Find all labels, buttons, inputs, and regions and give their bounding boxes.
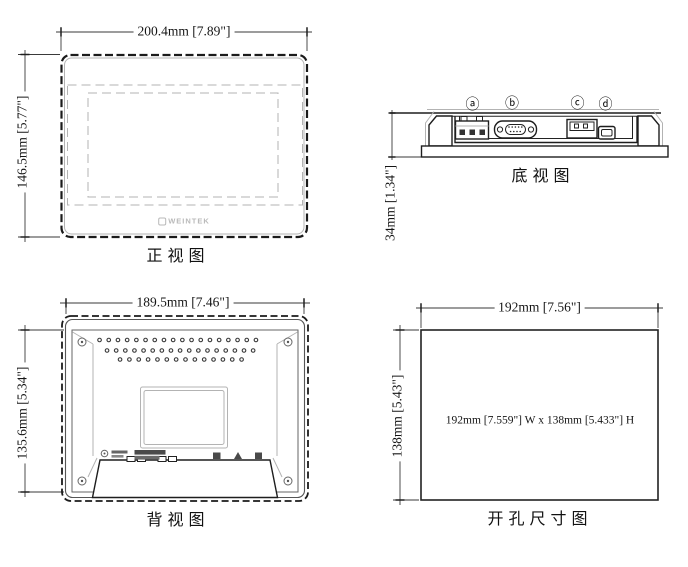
port-label-c: ⓒ — [571, 97, 585, 111]
bottom-left-mounting-ear — [429, 116, 452, 146]
micro-usb-port — [599, 127, 616, 140]
line-art — [0, 0, 688, 567]
port-label-b: ⓑ — [505, 97, 519, 111]
bottom-height-dim-lines — [388, 110, 421, 160]
rear-height-dimension-label: 135.6mm [5.34"] — [16, 363, 31, 464]
cutout-drawing — [393, 303, 663, 505]
weintek-logo-text: WEINTEK — [168, 217, 210, 226]
cutout-view-caption: 开孔尺寸图 — [487, 511, 592, 529]
hmi-dimension-drawing: 200.4mm [7.89"] 146.5mm [5.77"] WEINTEK … — [0, 0, 688, 567]
weintek-logo: WEINTEK — [158, 217, 210, 226]
cutout-width-dimension-label: 192mm [7.56"] — [494, 300, 585, 315]
bottom-right-mounting-ear — [638, 116, 659, 146]
front-bezel-inner-edge — [65, 58, 305, 234]
port-label-a: ⓐ — [466, 98, 480, 112]
cutout-size-note: 192mm [7.559"] W x 138mm [5.433"] H — [442, 414, 638, 427]
power-terminal-port — [456, 117, 489, 140]
vent-holes — [100, 340, 264, 360]
weintek-logo-icon — [158, 217, 166, 225]
rear-connector-bay — [93, 460, 278, 498]
front-width-dimension-label: 200.4mm [7.89"] — [134, 24, 235, 39]
rear-width-dimension-label: 189.5mm [7.46"] — [133, 295, 234, 310]
serial-db9-port — [495, 121, 537, 138]
rear-view-caption: 背视图 — [146, 512, 209, 530]
certification-marks — [101, 450, 262, 460]
front-display-area — [88, 93, 278, 197]
bottom-height-dimension-label: 34mm [1.34"] — [384, 161, 399, 245]
usb-a-port — [567, 120, 597, 139]
front-opening-hidden-edge — [68, 85, 303, 205]
bottom-view-caption: 底视图 — [511, 168, 574, 186]
front-view-drawing — [18, 27, 312, 242]
bottom-view-drawing — [388, 110, 668, 161]
bottom-front-bezel-plate — [422, 146, 669, 157]
rear-display-recess-inner — [144, 391, 224, 445]
rear-view-drawing — [18, 298, 310, 501]
front-height-dimension-label: 146.5mm [5.77"] — [16, 92, 31, 193]
front-bezel-outline — [62, 55, 308, 237]
rear-display-recess-outer — [141, 387, 228, 448]
front-view-caption: 正视图 — [146, 248, 209, 266]
port-label-d: ⓓ — [599, 98, 613, 112]
cutout-height-dimension-label: 138mm [5.43"] — [391, 371, 406, 462]
